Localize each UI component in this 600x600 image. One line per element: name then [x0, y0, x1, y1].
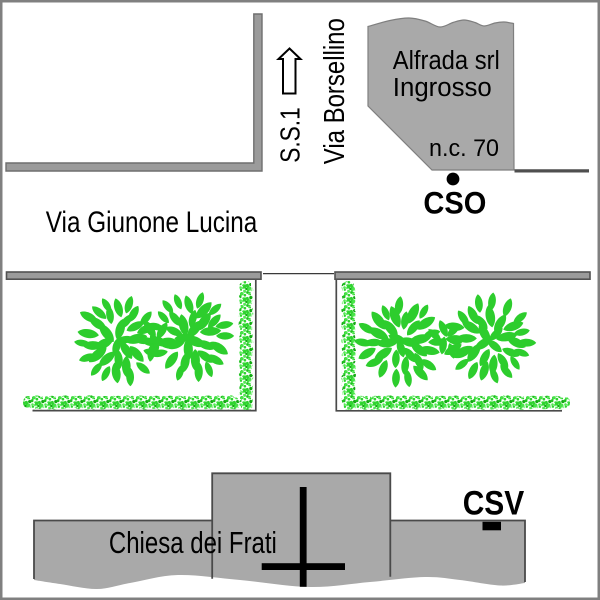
svg-text:Chiesa dei Frati: Chiesa dei Frati: [109, 525, 277, 560]
svg-text:CSV: CSV: [463, 484, 525, 522]
svg-text:n.c. 70: n.c. 70: [429, 135, 499, 162]
svg-text:CSO: CSO: [423, 185, 486, 221]
svg-text:S.S.1: S.S.1: [275, 107, 306, 163]
svg-text:Via Borsellino: Via Borsellino: [319, 18, 351, 164]
svg-text:Via Giunone Lucina: Via Giunone Lucina: [46, 206, 258, 239]
svg-text:Ingrosso: Ingrosso: [393, 74, 492, 102]
svg-text:Alfrada srl: Alfrada srl: [393, 47, 500, 75]
